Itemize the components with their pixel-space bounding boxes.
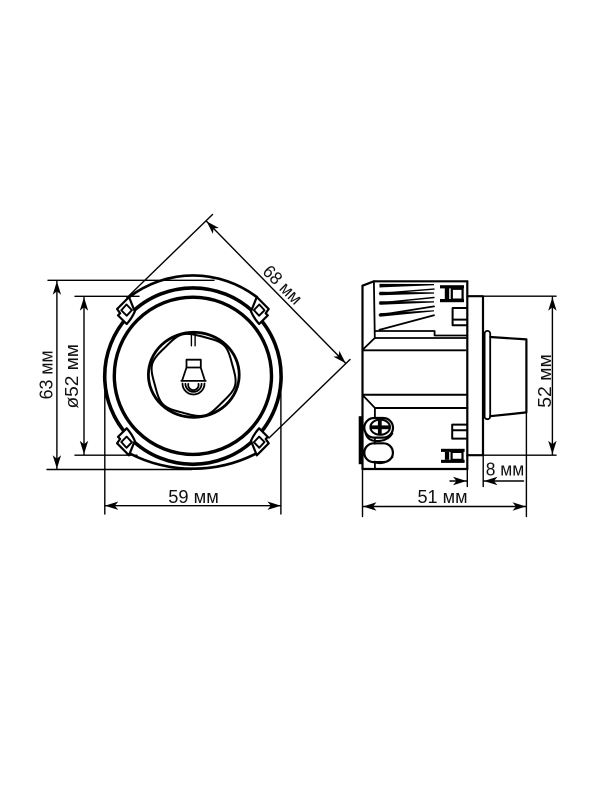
svg-text:63 мм: 63 мм: [35, 350, 56, 399]
svg-text:51 мм: 51 мм: [418, 486, 468, 507]
svg-text:8 мм: 8 мм: [486, 459, 525, 480]
svg-text:59 мм: 59 мм: [168, 486, 219, 507]
svg-text:ø52 мм: ø52 мм: [61, 344, 82, 409]
svg-text:52 мм: 52 мм: [534, 354, 555, 408]
